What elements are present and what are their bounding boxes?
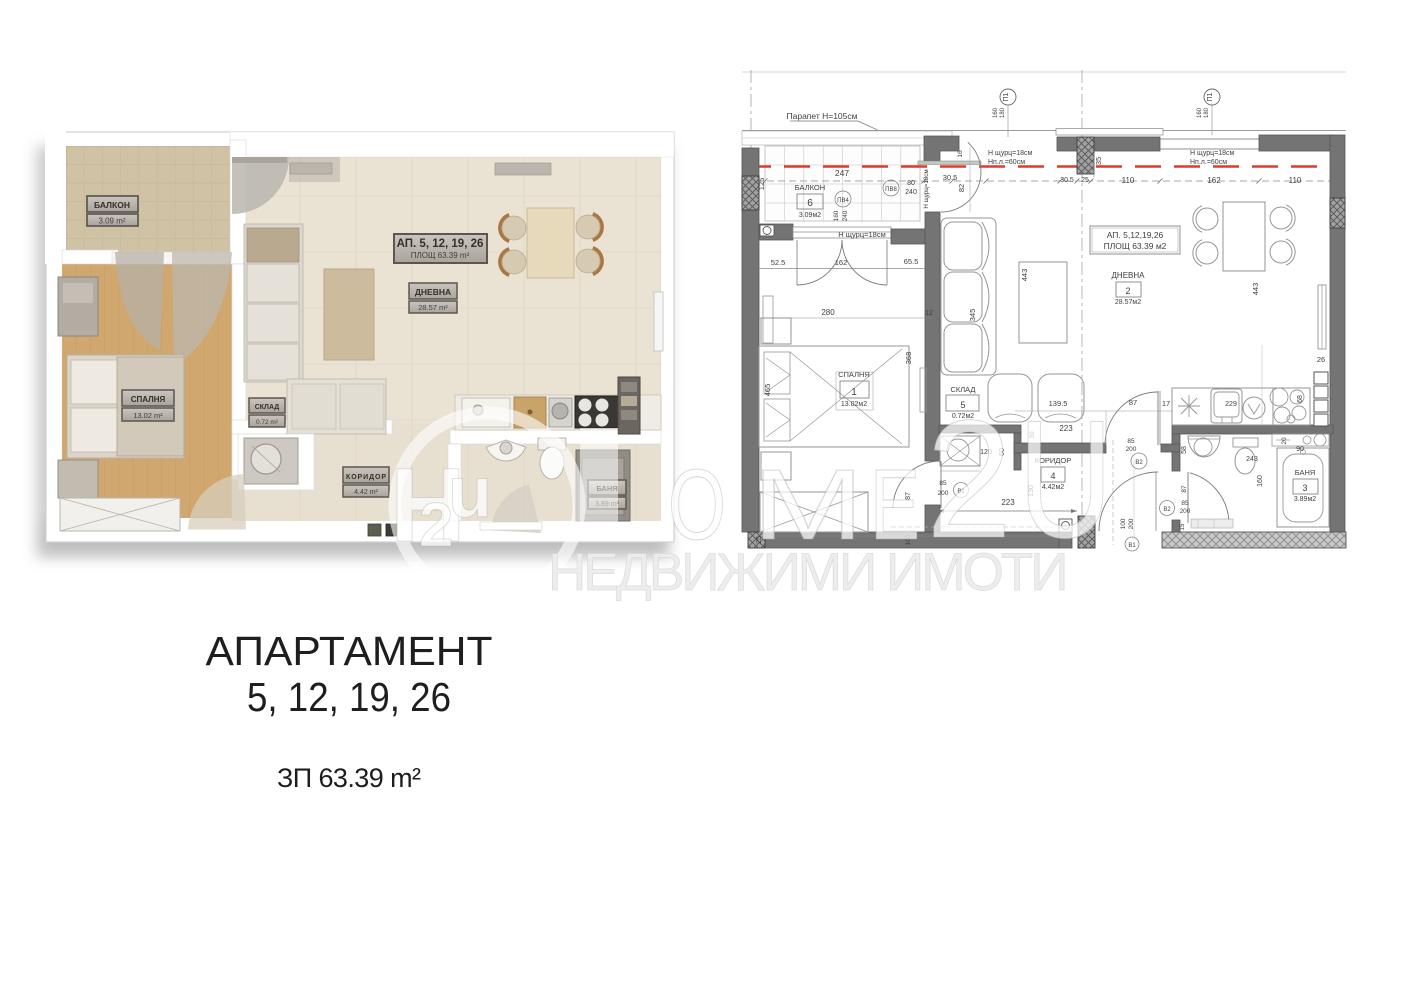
- svg-text:26: 26: [1317, 355, 1325, 364]
- svg-text:200: 200: [1126, 446, 1137, 453]
- svg-text:68: 68: [1297, 395, 1304, 403]
- svg-text:ПВ8: ПВ8: [885, 187, 897, 193]
- svg-text:160: 160: [833, 210, 840, 221]
- svg-text:П1: П1: [1207, 92, 1214, 101]
- svg-text:4.42 m²: 4.42 m²: [354, 489, 378, 496]
- svg-text:85: 85: [1127, 438, 1135, 445]
- svg-text:Нп.л.=60см: Нп.л.=60см: [988, 159, 1025, 166]
- svg-text:30.5: 30.5: [1060, 177, 1074, 184]
- svg-text:65.5: 65.5: [904, 257, 919, 266]
- svg-text:200: 200: [1180, 508, 1191, 515]
- svg-text:247: 247: [835, 168, 849, 178]
- svg-text:3.09 m²: 3.09 m²: [98, 217, 125, 226]
- svg-text:2: 2: [1125, 286, 1130, 296]
- svg-text:110: 110: [1122, 176, 1135, 185]
- svg-text:СКЛАД: СКЛАД: [255, 404, 280, 411]
- svg-text:110: 110: [1289, 176, 1302, 185]
- svg-text:368: 368: [904, 352, 913, 365]
- svg-text:90: 90: [1296, 446, 1304, 453]
- svg-text:АП. 5,12,19,26: АП. 5,12,19,26: [1107, 230, 1164, 240]
- svg-text:НЕДВИЖИМИ ИМОТИ: НЕДВИЖИМИ ИМОТИ: [548, 543, 1069, 602]
- svg-text:87: 87: [1129, 398, 1137, 407]
- svg-text:В2: В2: [1135, 460, 1143, 466]
- svg-text:Парапет Н=105см: Парапет Н=105см: [787, 111, 858, 121]
- svg-text:5, 12, 19, 26: 5, 12, 19, 26: [247, 674, 451, 720]
- svg-text:229: 229: [1225, 401, 1237, 408]
- svg-text:243: 243: [1246, 456, 1258, 463]
- svg-text:ДНЕВНА: ДНЕВНА: [1112, 271, 1146, 280]
- svg-text:ЗП 63.39 m²: ЗП 63.39 m²: [277, 763, 421, 793]
- svg-text:ПВ4: ПВ4: [837, 198, 849, 204]
- svg-text:162: 162: [835, 258, 848, 267]
- svg-text:БАНЯ: БАНЯ: [1295, 468, 1316, 477]
- svg-text:465: 465: [763, 384, 772, 397]
- svg-text:1: 1: [851, 387, 857, 398]
- svg-text:162: 162: [1207, 176, 1221, 185]
- svg-text:20: 20: [1281, 437, 1288, 445]
- svg-text:58: 58: [1181, 446, 1188, 454]
- svg-text:ДНЕВНА: ДНЕВНА: [415, 287, 451, 297]
- svg-text:52.5: 52.5: [771, 258, 786, 267]
- svg-text:82: 82: [957, 184, 966, 192]
- svg-text:345: 345: [968, 309, 977, 322]
- svg-text:85: 85: [1181, 500, 1189, 507]
- svg-text:u: u: [448, 453, 492, 533]
- svg-text:БАЛКОН: БАЛКОН: [795, 183, 825, 192]
- svg-text:443: 443: [1251, 283, 1260, 296]
- svg-text:80: 80: [907, 180, 915, 187]
- svg-text:КОРИДОР: КОРИДОР: [346, 474, 386, 481]
- svg-text:АП. 5, 12, 19, 26: АП. 5, 12, 19, 26: [397, 238, 484, 250]
- svg-text:443: 443: [1020, 269, 1029, 282]
- svg-text:БАЛКОН: БАЛКОН: [94, 200, 130, 210]
- svg-text:280: 280: [821, 308, 835, 317]
- svg-text:Н щурц=18см: Н щурц=18см: [1190, 150, 1235, 157]
- svg-text:180: 180: [1000, 107, 1006, 118]
- svg-text:160: 160: [1257, 475, 1264, 487]
- svg-text:240: 240: [842, 210, 849, 221]
- svg-text:13.02 m²: 13.02 m²: [133, 411, 163, 420]
- svg-text:6: 6: [807, 198, 813, 209]
- svg-text:ПЛОЩ 63.39 м2: ПЛОЩ 63.39 м2: [1104, 241, 1167, 251]
- svg-text:28.57 m²: 28.57 m²: [418, 303, 448, 312]
- svg-text:В2: В2: [1163, 507, 1171, 513]
- svg-text:160: 160: [993, 107, 999, 118]
- svg-text:В1: В1: [1128, 543, 1136, 549]
- svg-text:15: 15: [1180, 523, 1186, 530]
- svg-text:28.57м2: 28.57м2: [1115, 299, 1141, 306]
- svg-text:13.02м2: 13.02м2: [841, 401, 867, 408]
- svg-text:3: 3: [1302, 483, 1307, 493]
- svg-text:35: 35: [1094, 157, 1103, 165]
- svg-text:25: 25: [1081, 177, 1089, 184]
- svg-text:ПЛОЩ 63.39 m²: ПЛОЩ 63.39 m²: [411, 251, 470, 260]
- svg-text:Н щурц=18см: Н щурц=18см: [838, 230, 886, 239]
- svg-text:СПАЛНЯ: СПАЛНЯ: [838, 370, 870, 379]
- svg-text:16: 16: [957, 150, 964, 158]
- svg-text:АПАРТАМЕНТ: АПАРТАМЕНТ: [206, 628, 493, 674]
- svg-text:3.09м2: 3.09м2: [799, 212, 821, 219]
- svg-text:3.89м2: 3.89м2: [1294, 496, 1316, 503]
- svg-text:180: 180: [1204, 107, 1210, 118]
- svg-text:Н щурц=18см: Н щурц=18см: [988, 150, 1033, 157]
- svg-text:Нп.л.=60см: Нп.л.=60см: [1190, 159, 1227, 166]
- svg-text:17: 17: [1162, 399, 1170, 408]
- svg-text:160: 160: [1197, 107, 1203, 118]
- svg-text:125: 125: [757, 178, 766, 191]
- svg-text:30.5: 30.5: [943, 173, 958, 182]
- svg-text:240: 240: [905, 189, 917, 196]
- svg-text:12: 12: [925, 310, 933, 317]
- svg-text:0.72 m²: 0.72 m²: [256, 419, 279, 426]
- svg-text:СПАЛНЯ: СПАЛНЯ: [131, 395, 166, 404]
- svg-text:Н щурц=18см: Н щурц=18см: [923, 169, 930, 208]
- svg-text:П1: П1: [1003, 92, 1010, 101]
- svg-text:100: 100: [1120, 518, 1127, 529]
- svg-text:87: 87: [1181, 485, 1188, 493]
